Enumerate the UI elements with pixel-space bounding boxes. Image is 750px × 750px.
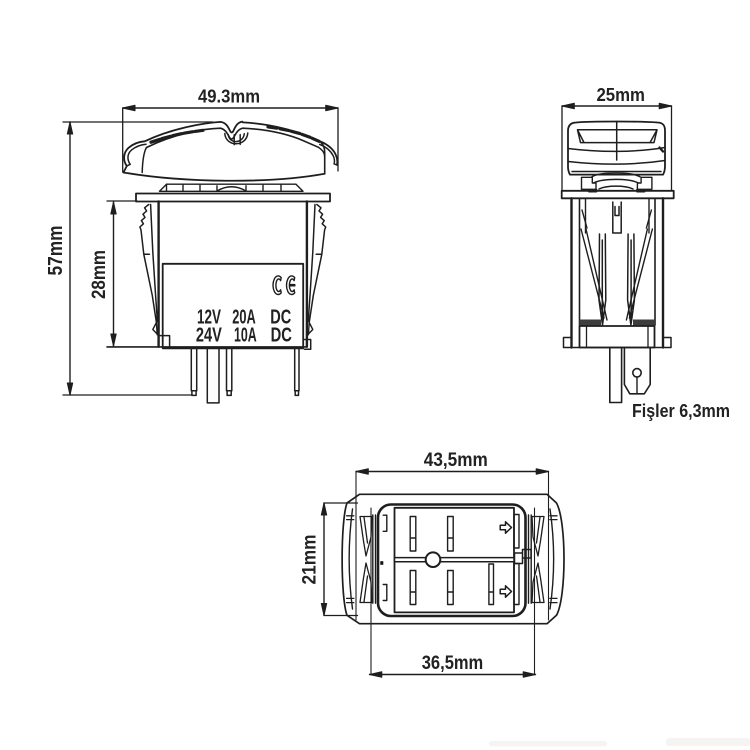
svg-text:24V: 24V [196,325,222,347]
svg-text:Fişler 6,3mm: Fişler 6,3mm [632,401,730,421]
svg-text:43,5mm: 43,5mm [424,450,488,471]
svg-text:10A: 10A [234,325,257,347]
svg-text:57mm: 57mm [45,226,67,276]
svg-text:36,5mm: 36,5mm [422,653,484,674]
svg-text:25mm: 25mm [596,84,645,105]
svg-text:DC: DC [271,325,292,347]
svg-text:21mm: 21mm [299,535,321,585]
svg-text:49.3mm: 49.3mm [198,86,260,107]
svg-text:28mm: 28mm [88,250,110,299]
